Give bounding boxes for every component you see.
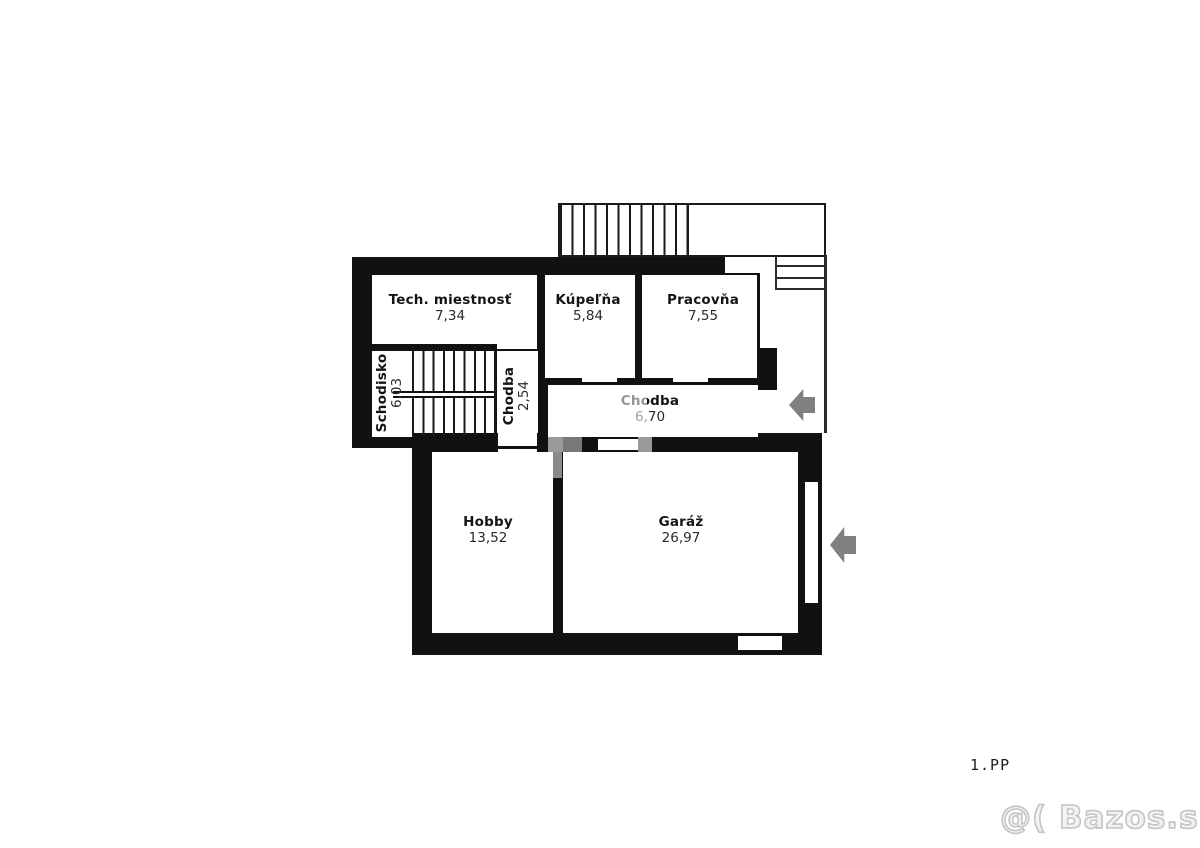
room-label-pracovna: Pracovňa 7,55 [613, 293, 793, 324]
room-label-chodba-small: Chodba 2,54 [500, 354, 534, 438]
room-pracovna [642, 273, 760, 378]
room-area: 13,52 [398, 531, 578, 547]
entry-step-line [777, 288, 824, 290]
door-garaz [598, 439, 638, 450]
entry-step-line [777, 265, 824, 267]
garage-door-opening [805, 482, 818, 603]
entry-steps-left-line [775, 255, 777, 290]
room-name: Garáž [591, 515, 771, 531]
door-pracovna [673, 377, 708, 382]
room-area: 26,97 [591, 531, 771, 547]
room-label-chodba-main: Chodba 6,70 [560, 394, 740, 425]
floor-plan: Tech. miestnosť 7,34 Kúpeľňa 5,84 Pracov… [0, 0, 1200, 848]
room-kupelna [545, 275, 635, 378]
room-area: 6,03 [390, 348, 406, 438]
entry-step-line [777, 277, 824, 279]
room-area: 7,55 [613, 309, 793, 325]
bazos-watermark: @( Bazos.sk [1000, 800, 1200, 836]
room-label-schodisko: Schodisko 6,03 [373, 348, 407, 438]
room-name: Hobby [398, 515, 578, 531]
entry-door-jamb [758, 348, 777, 390]
room-label-hobby: Hobby 13,52 [398, 515, 578, 546]
door-kupelna [582, 377, 617, 382]
garage-arrow-icon [830, 527, 856, 563]
room-label-garaz: Garáž 26,97 [591, 515, 771, 546]
door-chodba-small-threshold [498, 449, 537, 453]
upper-wall-notch [725, 257, 758, 273]
door-tech-miestnost [497, 344, 537, 349]
room-name: Chodba [502, 354, 518, 438]
room-area: 6,70 [560, 410, 740, 426]
room-name: Schodisko [375, 348, 391, 438]
entry-arrow-icon [789, 389, 815, 421]
exterior-stair-treads [560, 205, 689, 255]
watermark-smudge [548, 437, 563, 452]
room-area: 2,54 [517, 354, 533, 438]
watermark-fade [595, 391, 647, 427]
bottom-wall-opening [738, 636, 782, 650]
floor-level-label: 1.PP [970, 756, 1010, 774]
room-name: Pracovňa [613, 293, 793, 309]
watermark-smudge [553, 452, 562, 478]
stair-rail [393, 391, 494, 398]
exterior-stairs [558, 203, 826, 257]
watermark-smudge [638, 437, 652, 452]
room-name: Chodba [560, 394, 740, 410]
entry-corridor-right-line [824, 255, 827, 433]
watermark-smudge [563, 437, 582, 452]
